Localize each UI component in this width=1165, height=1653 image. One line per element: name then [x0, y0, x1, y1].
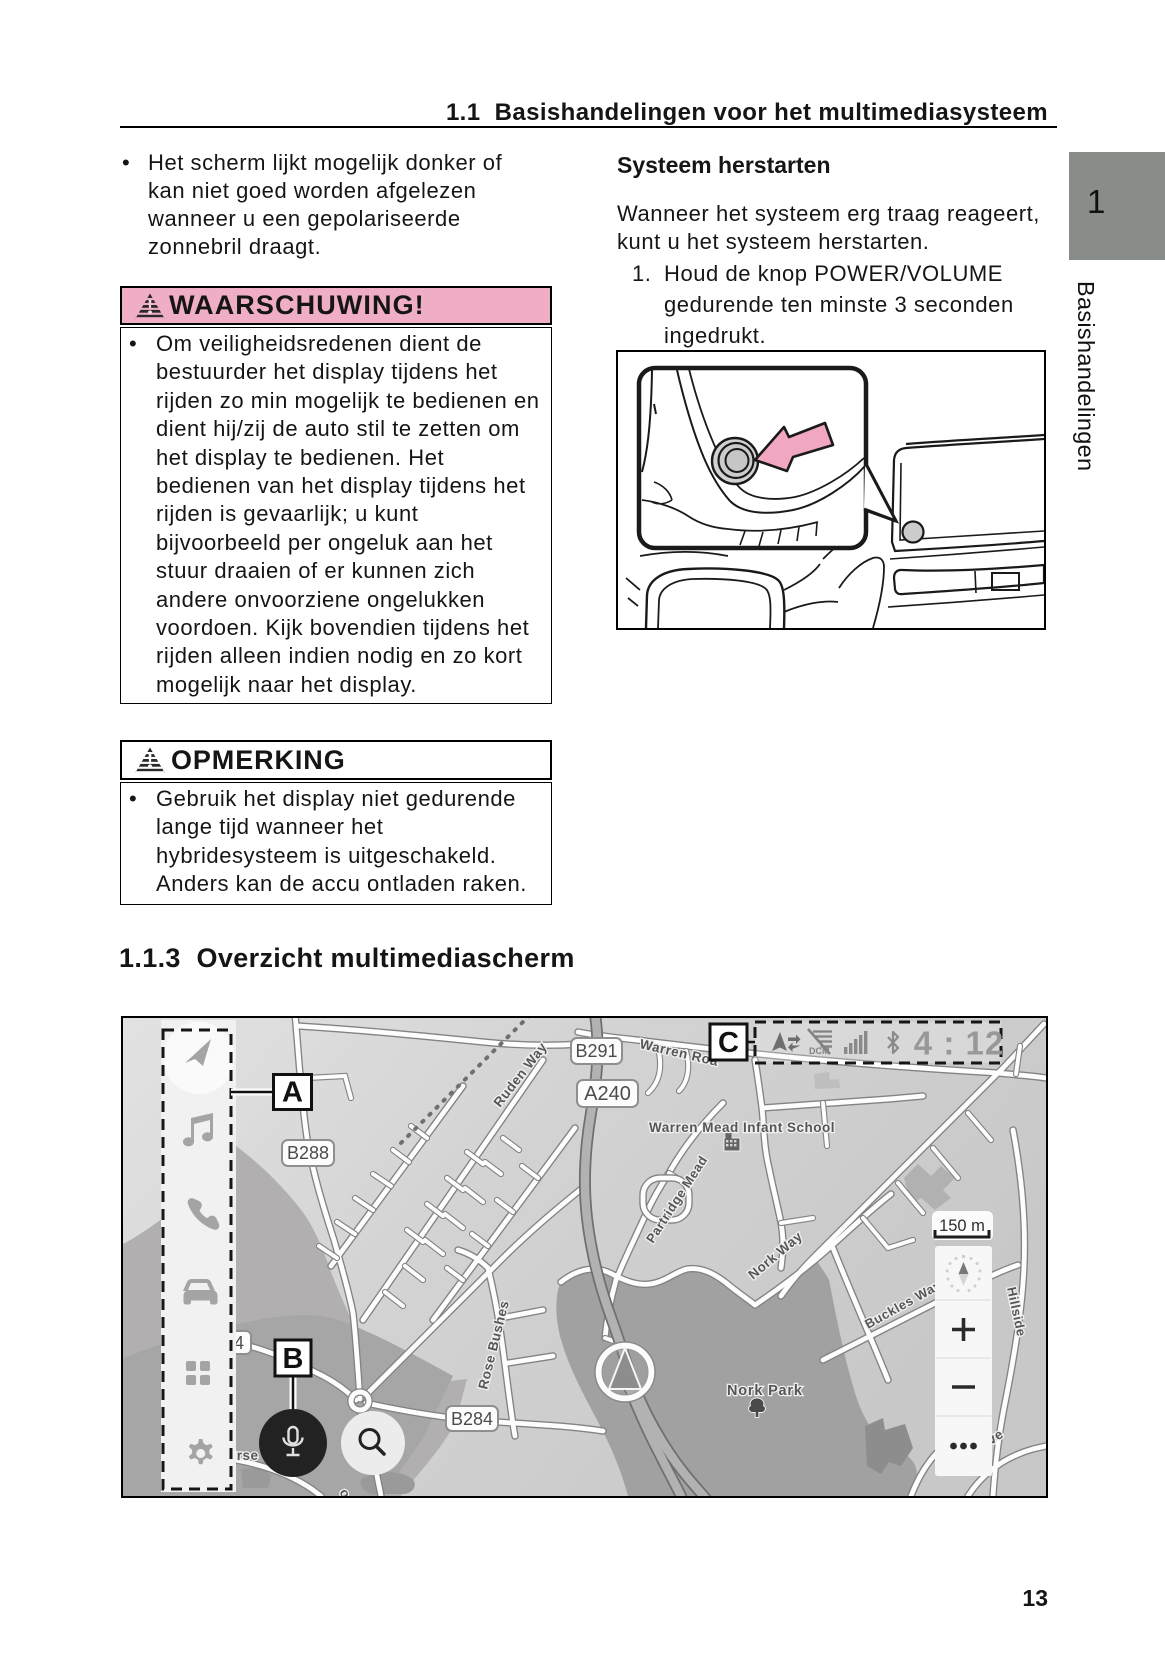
svg-text:Nork Park: Nork Park	[727, 1383, 803, 1399]
svg-text:B288: B288	[287, 1143, 329, 1163]
svg-text:B284: B284	[451, 1409, 493, 1429]
svg-text:B: B	[283, 1343, 304, 1375]
svg-text:C: C	[718, 1027, 739, 1059]
svg-text:A240: A240	[584, 1083, 631, 1105]
svg-text:DCM: DCM	[809, 1046, 830, 1056]
svg-text:A: A	[282, 1077, 303, 1109]
svg-text:B291: B291	[575, 1041, 617, 1061]
svg-text:150 m: 150 m	[939, 1217, 985, 1235]
svg-text:4 : 12: 4 : 12	[914, 1025, 1004, 1062]
svg-text:Warren Mead Infant School: Warren Mead Infant School	[649, 1120, 835, 1135]
